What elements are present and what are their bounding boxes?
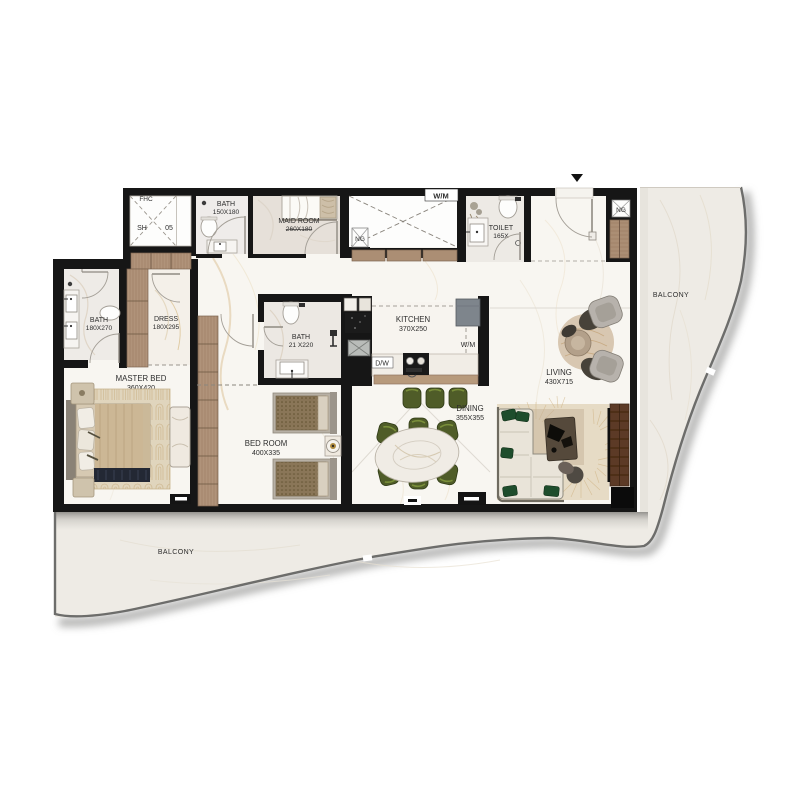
svg-text:BED ROOM: BED ROOM <box>245 439 287 448</box>
svg-text:SH: SH <box>137 225 147 232</box>
svg-text:KITCHEN: KITCHEN <box>396 315 430 324</box>
svg-text:FHC: FHC <box>139 196 153 203</box>
svg-text:355X355: 355X355 <box>456 415 484 422</box>
svg-text:21 X220: 21 X220 <box>289 342 314 349</box>
svg-text:150X180: 150X180 <box>213 209 240 216</box>
svg-text:DRESS: DRESS <box>154 316 178 323</box>
svg-text:MASTER BED: MASTER BED <box>116 374 167 383</box>
svg-text:TOILET: TOILET <box>489 225 514 232</box>
svg-text:W/M: W/M <box>461 342 476 349</box>
svg-text:180X270: 180X270 <box>86 325 113 332</box>
svg-text:BATH: BATH <box>292 334 310 341</box>
svg-text:05: 05 <box>165 225 173 232</box>
svg-text:NG: NG <box>616 207 626 214</box>
svg-text:W/M: W/M <box>433 192 448 201</box>
svg-text:BATH: BATH <box>217 201 235 208</box>
svg-text:430X715: 430X715 <box>545 379 573 386</box>
svg-text:BATH: BATH <box>90 317 108 324</box>
svg-text:BALCONY: BALCONY <box>653 292 689 299</box>
svg-text:180X295: 180X295 <box>153 324 180 331</box>
svg-text:165X: 165X <box>493 233 509 240</box>
svg-text:400X335: 400X335 <box>252 450 280 457</box>
svg-text:NG: NG <box>355 236 365 243</box>
svg-text:LIVING: LIVING <box>546 368 572 377</box>
svg-text:370X250: 370X250 <box>399 326 427 333</box>
svg-text:D/W: D/W <box>375 361 389 368</box>
svg-text:260X180: 260X180 <box>286 226 313 233</box>
svg-text:BALCONY: BALCONY <box>158 549 194 556</box>
svg-text:MAID ROOM: MAID ROOM <box>278 218 319 225</box>
svg-text:DINING: DINING <box>456 404 483 413</box>
